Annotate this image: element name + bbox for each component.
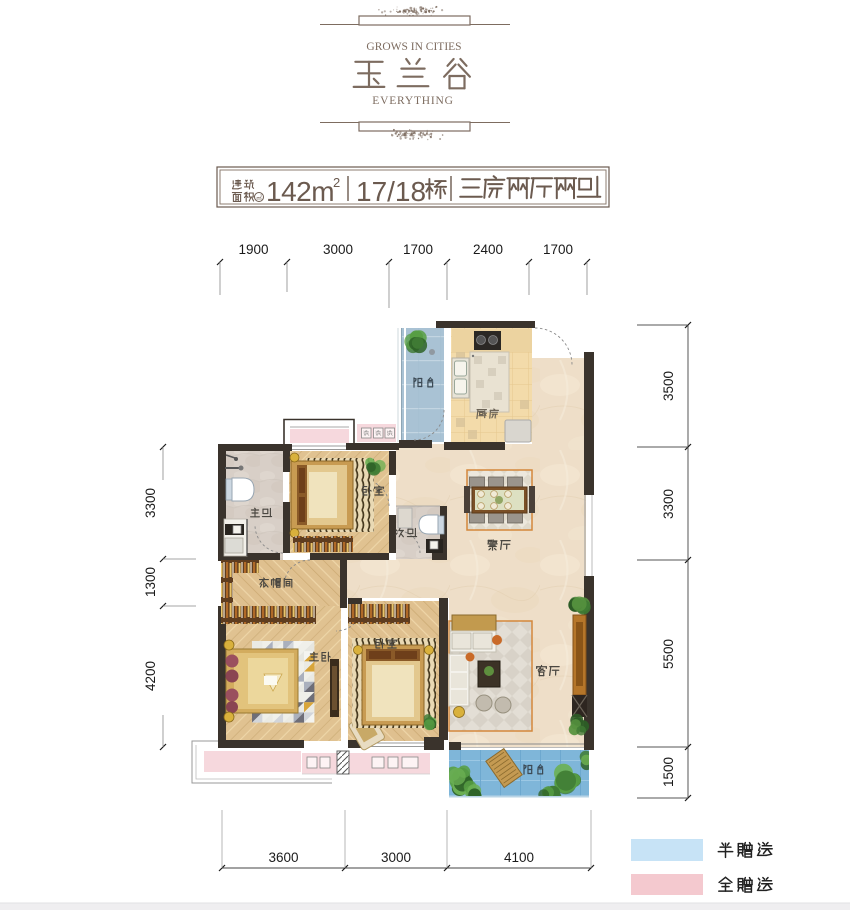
svg-text:1300: 1300 xyxy=(143,567,158,597)
svg-text:17/18: 17/18 xyxy=(356,176,426,207)
svg-text:1900: 1900 xyxy=(238,242,268,257)
svg-text:1700: 1700 xyxy=(403,242,433,257)
svg-text:142m: 142m xyxy=(266,176,334,207)
svg-text:EVERYTHING: EVERYTHING xyxy=(372,95,453,107)
svg-text:5500: 5500 xyxy=(661,639,676,669)
svg-text:3600: 3600 xyxy=(268,850,298,865)
svg-text:4100: 4100 xyxy=(504,850,534,865)
svg-text:3500: 3500 xyxy=(661,371,676,401)
svg-text:3000: 3000 xyxy=(323,242,353,257)
svg-text:3000: 3000 xyxy=(381,850,411,865)
svg-text:1500: 1500 xyxy=(661,757,676,787)
svg-text:㎡: ㎡ xyxy=(256,194,262,202)
svg-text:1700: 1700 xyxy=(543,242,573,257)
svg-text:2: 2 xyxy=(333,175,340,190)
svg-text:3300: 3300 xyxy=(661,489,676,519)
svg-text:3300: 3300 xyxy=(143,488,158,518)
svg-text:GROWS IN CITIES: GROWS IN CITIES xyxy=(366,41,461,53)
svg-text:4200: 4200 xyxy=(143,661,158,691)
svg-text:2400: 2400 xyxy=(473,242,503,257)
